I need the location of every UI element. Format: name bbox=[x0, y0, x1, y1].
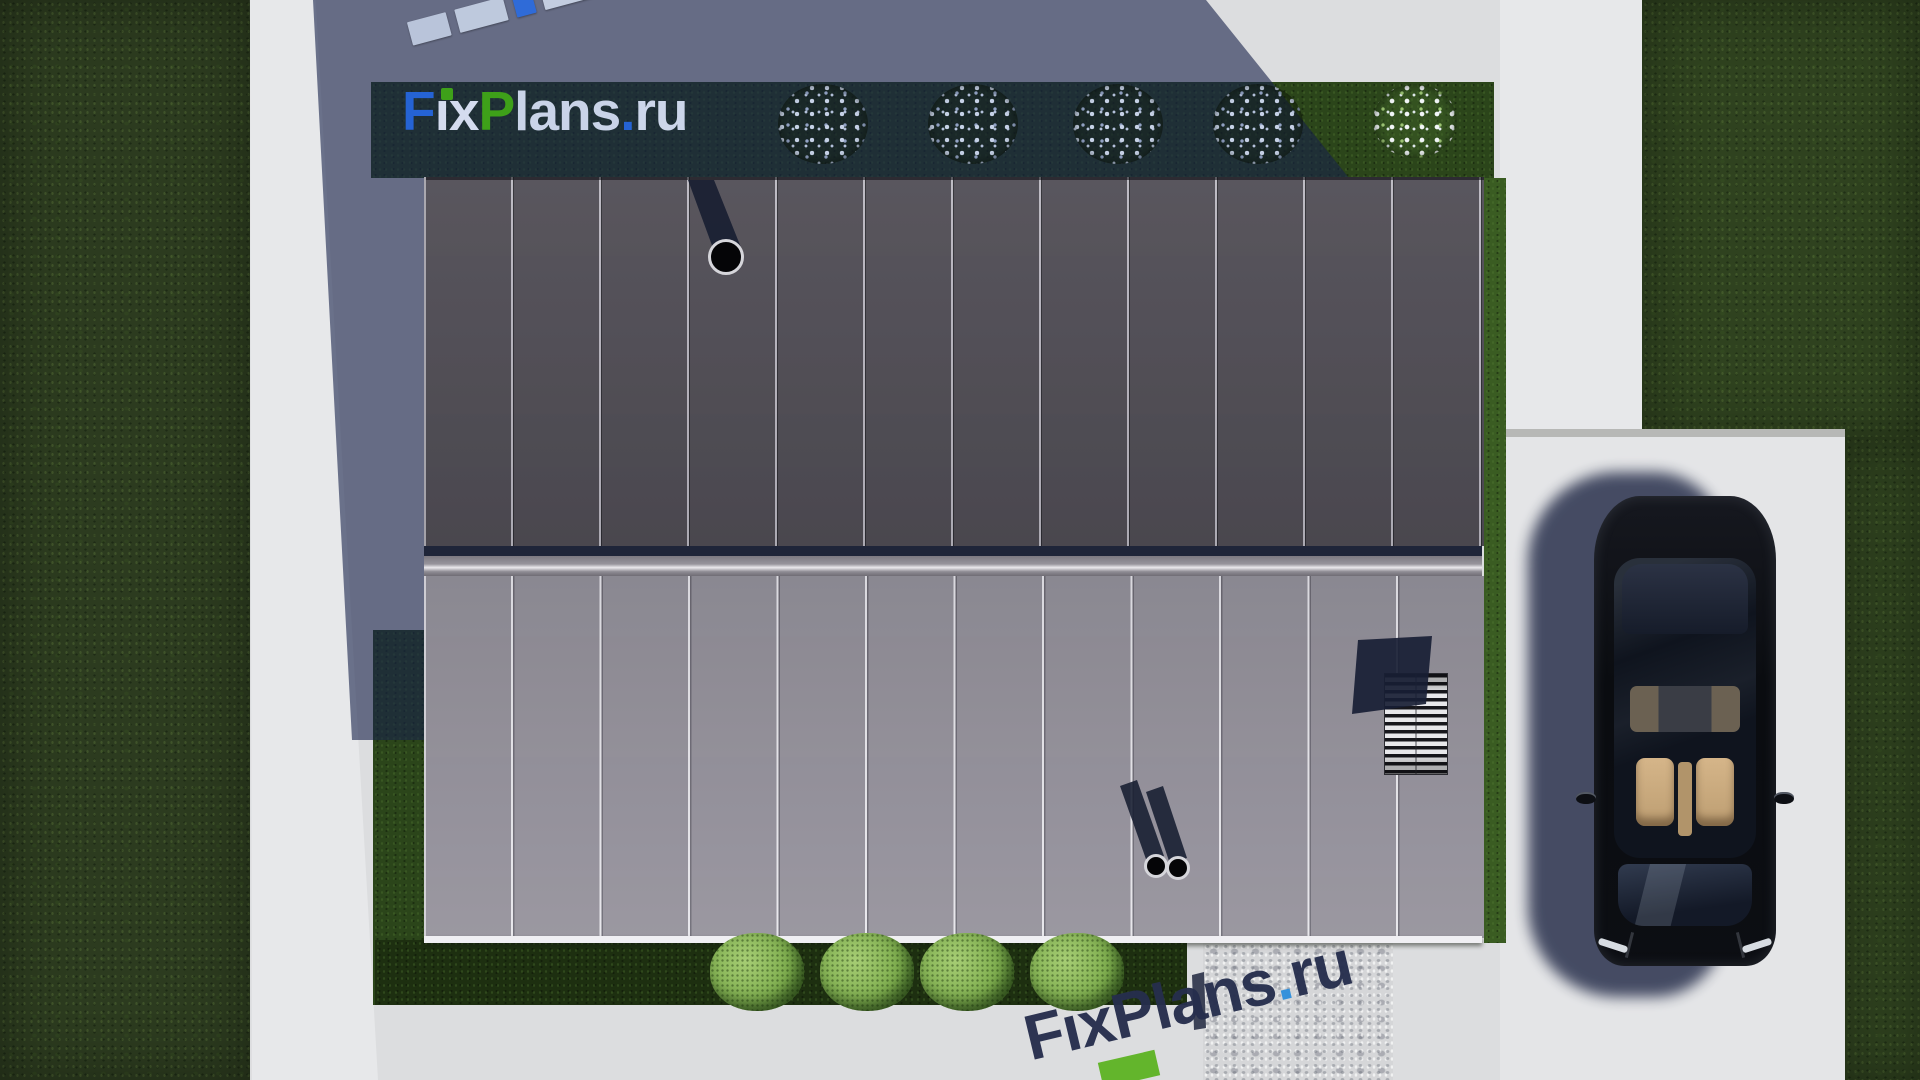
car-front-seat-right bbox=[1696, 758, 1734, 826]
flower-bush bbox=[778, 84, 868, 163]
flower-bush bbox=[1073, 84, 1163, 163]
car-hood-crease bbox=[1625, 932, 1634, 958]
logo-letter: lans bbox=[514, 84, 620, 139]
flower-bush bbox=[928, 84, 1018, 163]
car-mirror-left bbox=[1576, 792, 1596, 804]
green-bush bbox=[710, 933, 804, 1010]
car-roof-glass bbox=[1614, 558, 1756, 858]
logo-letter: ru bbox=[635, 84, 688, 139]
logo-i-dot bbox=[441, 88, 453, 100]
chimney-pipe bbox=[708, 239, 744, 275]
car-mirror-right bbox=[1774, 792, 1794, 804]
car-front-seat-left bbox=[1636, 758, 1674, 826]
car-windshield bbox=[1618, 864, 1752, 926]
green-bush bbox=[920, 933, 1014, 1010]
car-rear-window bbox=[1622, 564, 1748, 634]
vent-pipe bbox=[1144, 854, 1168, 878]
logo-letter: P bbox=[478, 84, 514, 139]
car-rear-seats bbox=[1630, 686, 1740, 732]
car bbox=[1594, 496, 1776, 966]
green-bush bbox=[820, 933, 914, 1010]
site-plan-render: FıxPlans.ru FıxPlans.ru bbox=[0, 0, 1920, 1080]
logo-letter: . bbox=[620, 84, 634, 139]
terrace-shadow-flag bbox=[1352, 636, 1432, 714]
car-headlight-left bbox=[1598, 938, 1629, 954]
car-center-console bbox=[1678, 762, 1692, 836]
logo-letter: x bbox=[449, 84, 479, 139]
logo-letter: F bbox=[402, 84, 435, 139]
vent-pipe bbox=[1166, 856, 1190, 880]
flower-bush bbox=[1373, 84, 1457, 158]
car-headlight-right bbox=[1742, 938, 1773, 954]
flower-bush bbox=[1213, 84, 1303, 163]
